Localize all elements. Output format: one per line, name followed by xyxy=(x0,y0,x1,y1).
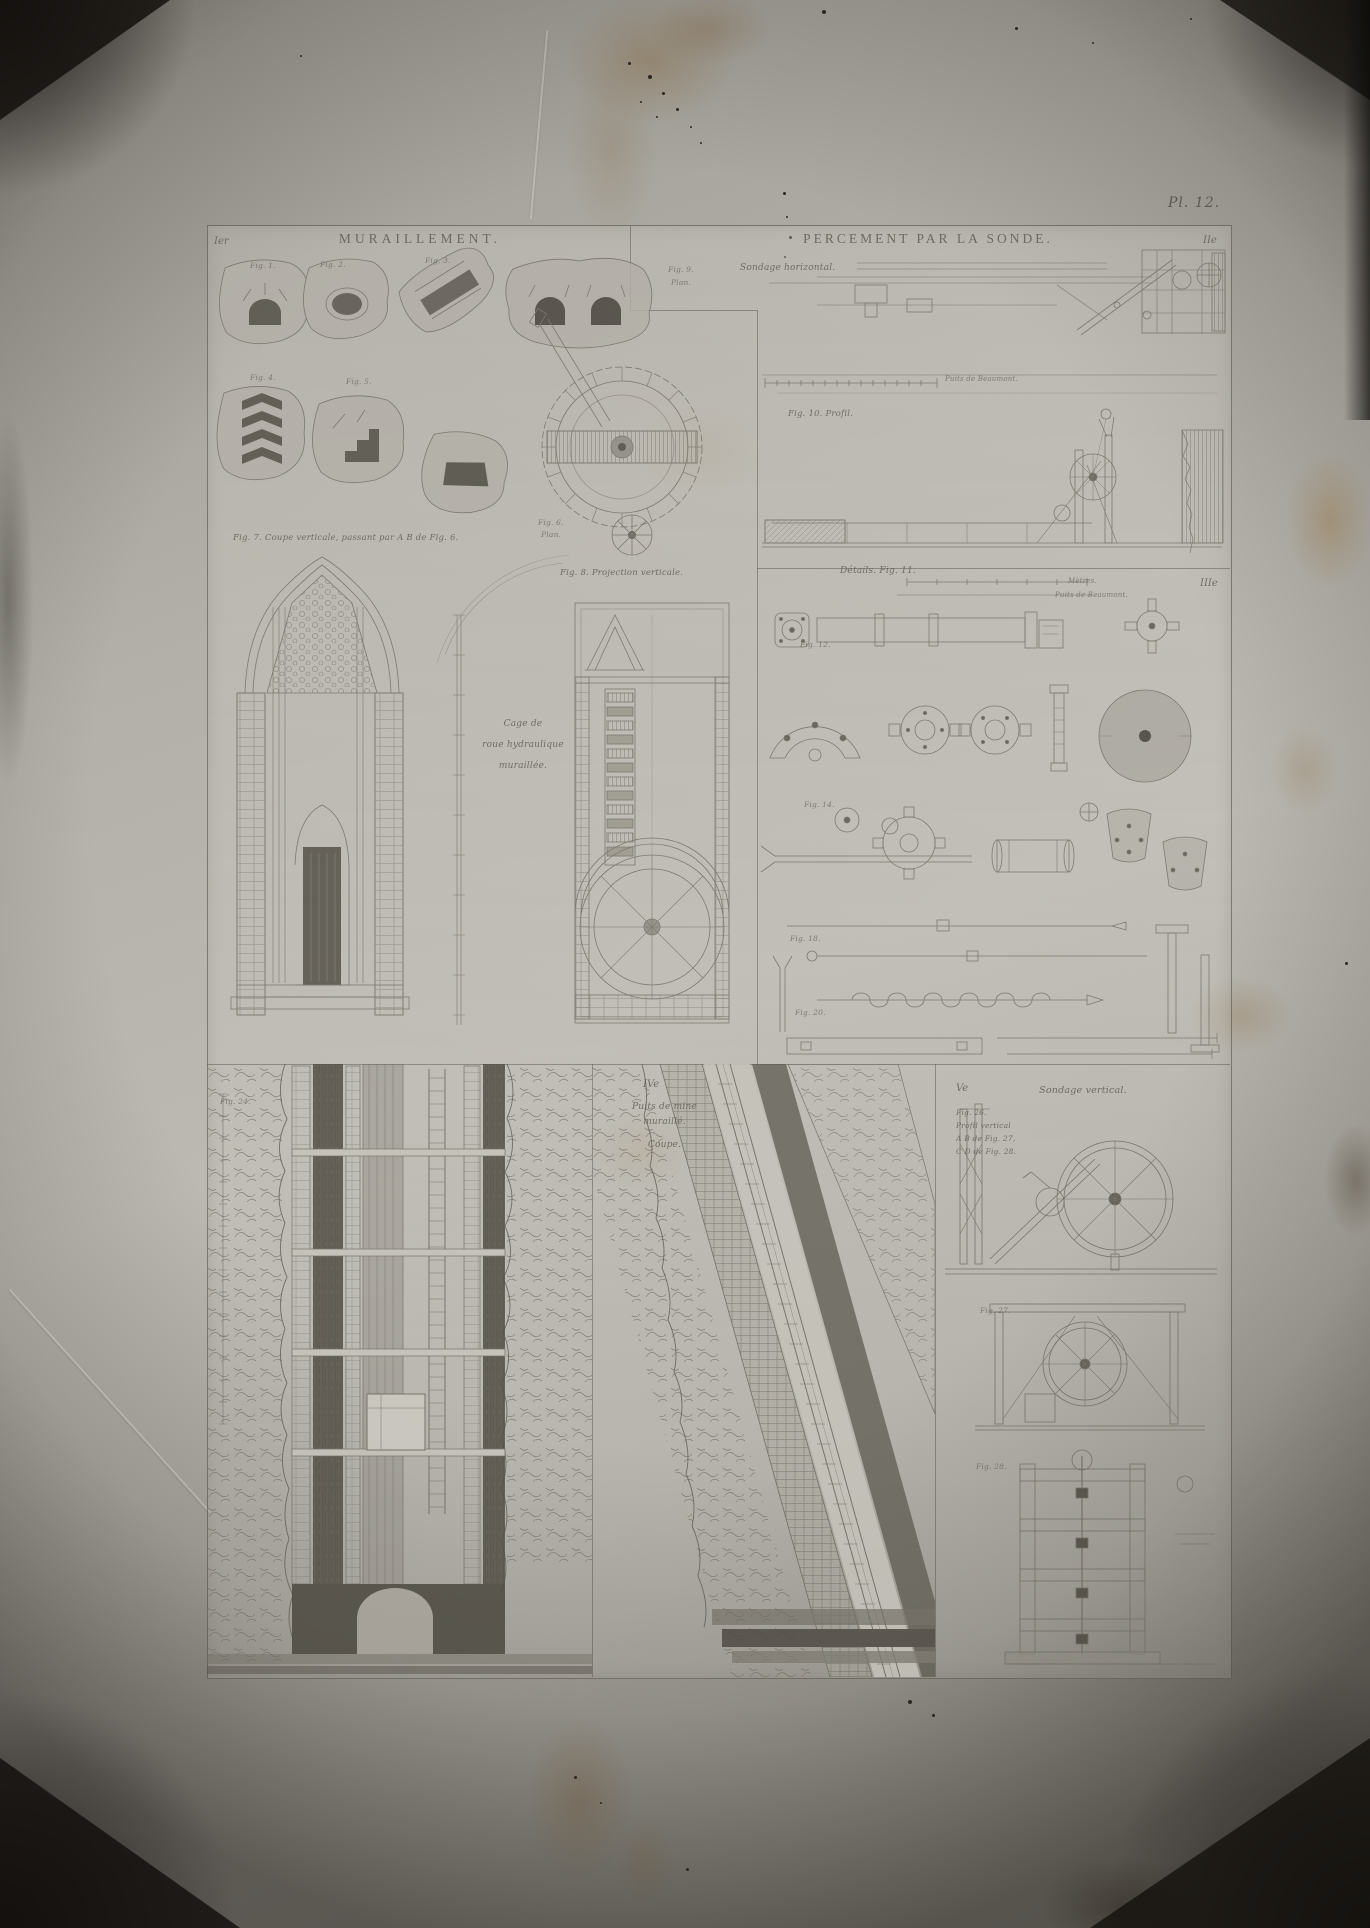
caption-puits-line3: Coupe. xyxy=(612,1138,717,1153)
caption-puits-line1: Puits de mine xyxy=(612,1100,717,1115)
background-edge-right xyxy=(1344,0,1370,420)
caption-fig2: Fig. 2. xyxy=(320,260,346,269)
caption-fig26-line3: A B de Fig. 27, xyxy=(956,1132,1036,1145)
caption-fig5: Fig. 5. xyxy=(346,377,372,386)
caption-fig26: Fig. 26. Profil vertical A B de Fig. 27,… xyxy=(956,1106,1036,1158)
caption-fig1: Fig. 1. xyxy=(250,261,276,270)
caption-fig20: Fig. 20. xyxy=(795,1008,826,1017)
photographed-engraving-plate: Pl. 12. MURAILLEMENT. PERCEMENT PAR LA S… xyxy=(0,0,1370,1928)
caption-details-scale1: Mètres. xyxy=(1068,577,1097,586)
foxing-speck xyxy=(932,1714,935,1717)
foxing-speck xyxy=(676,108,679,111)
foxing-speck xyxy=(640,101,642,103)
drawing-muraillement-figures xyxy=(207,225,757,1060)
caption-fig14: Fig. 14. xyxy=(804,800,835,809)
foxing-speck xyxy=(1345,962,1348,965)
foxing-speck xyxy=(822,10,826,14)
caption-sondage-horizontal: Sondage horizontal. xyxy=(740,263,835,274)
caption-fig6-plan: Plan. xyxy=(541,530,561,539)
caption-fig12: Fig. 12. xyxy=(800,640,831,649)
caption-fig28: Fig. 28. xyxy=(976,1462,1007,1471)
foxing-speck xyxy=(1190,18,1192,20)
caption-fig26-line2: Profil vertical xyxy=(956,1119,1036,1132)
caption-fig24: Fig. 24. xyxy=(220,1097,251,1106)
foxing-speck xyxy=(908,1700,912,1704)
foxing-speck xyxy=(574,1776,577,1779)
caption-cage-line2: roue hydraulique xyxy=(478,735,568,756)
caption-fig26-line1: Fig. 26. xyxy=(956,1106,1036,1119)
caption-fig6: Fig. 6. xyxy=(538,518,564,527)
caption-cage-line3: muraillée. xyxy=(478,756,568,777)
foxing-speck xyxy=(628,62,631,65)
drawing-inclined-walled-gallery xyxy=(592,1064,935,1677)
caption-fig10: Fig. 10. Profil. xyxy=(788,409,853,420)
foxing-speck xyxy=(662,92,665,95)
foxing-speck xyxy=(656,116,658,118)
background-corner-top-left xyxy=(0,0,170,120)
paper-crease-bottom-left xyxy=(9,1289,211,1513)
caption-puits-de-mine: Puits de mine muraillé. Coupe. xyxy=(612,1100,717,1153)
foxing-speck xyxy=(686,1868,689,1871)
foxing-speck xyxy=(648,75,652,79)
caption-fig26-line4: C D de Fig. 28. xyxy=(956,1145,1036,1158)
caption-details: Détails. Fig. 11. xyxy=(840,566,916,577)
caption-fig8: Fig. 8. Projection verticale. xyxy=(560,568,683,579)
drawing-vertical-mine-shaft xyxy=(207,1064,592,1677)
caption-puits-line2: muraillé. xyxy=(612,1115,717,1130)
caption-fig7: Fig. 7. Coupe verticale, passant par A B… xyxy=(233,533,458,544)
foxing-speck xyxy=(700,142,702,144)
foxing-speck xyxy=(690,126,692,128)
foxing-speck xyxy=(1092,42,1094,44)
caption-cage: Cage de roue hydraulique muraillée. xyxy=(478,714,568,777)
drawing-sondage-horizontal-machines xyxy=(757,225,1230,568)
foxing-speck xyxy=(1015,27,1018,30)
paper-crease-top-center xyxy=(530,30,549,219)
caption-fig9-plan: Plan. xyxy=(671,278,691,287)
foxing-speck xyxy=(786,216,788,218)
caption-fig9: Fig. 9. xyxy=(668,265,694,274)
caption-fig27: Fig. 27. xyxy=(980,1306,1011,1315)
foxing-speck xyxy=(600,1802,602,1804)
background-corner-bottom-right xyxy=(1090,1738,1370,1928)
foxing-speck xyxy=(300,55,302,57)
caption-fig4: Fig. 4. xyxy=(250,373,276,382)
caption-details-scale2: Puits de Beaumont. xyxy=(1055,591,1128,600)
caption-sondage-vertical: Sondage vertical. xyxy=(1008,1085,1158,1097)
caption-cage-line1: Cage de xyxy=(478,714,568,735)
plate-number: Pl. 12. xyxy=(1168,195,1220,211)
caption-fig18: Fig. 18. xyxy=(790,934,821,943)
background-corner-bottom-left xyxy=(0,1758,240,1928)
foxing-speck xyxy=(783,192,786,195)
caption-fig3: Fig. 3. xyxy=(425,256,451,265)
caption-scale-plan: Puits de Beaumont. xyxy=(945,375,1018,384)
